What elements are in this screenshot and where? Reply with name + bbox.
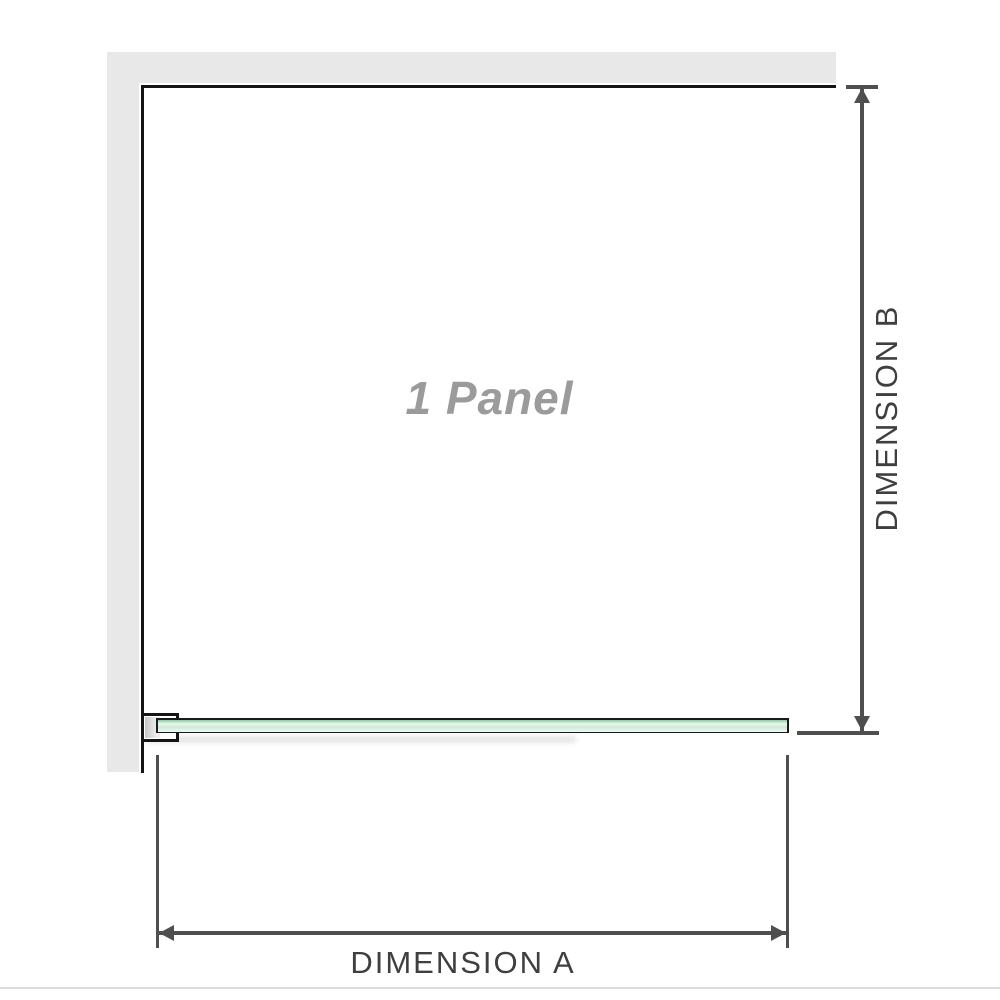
frame-left-border (141, 85, 144, 773)
panel-count-label: 1 Panel (143, 372, 836, 424)
dimension-a-label: DIMENSION A (163, 944, 763, 982)
shower-panel-diagram: 1 Panel DIMENSION B DIMENSION A (0, 0, 1000, 1000)
arrow-right-icon (771, 925, 786, 941)
dimension-b-line (860, 88, 864, 731)
wall-left-segment (107, 52, 139, 772)
arrow-left-icon (159, 925, 174, 941)
dimension-a-tick-left (156, 755, 159, 948)
arrow-down-icon (854, 716, 870, 731)
dimension-b-tick-bottom (797, 731, 879, 735)
bottom-divider (0, 987, 1000, 989)
dimension-a-line (157, 931, 787, 935)
arrow-up-icon (854, 88, 870, 103)
dimension-b-label: DIMENSION B (868, 218, 906, 618)
frame-top-border (141, 85, 836, 88)
dimension-a-tick-right (786, 755, 789, 948)
wall-top-segment (107, 52, 836, 83)
glass-panel (156, 718, 789, 733)
glass-panel-shadow (146, 737, 576, 742)
